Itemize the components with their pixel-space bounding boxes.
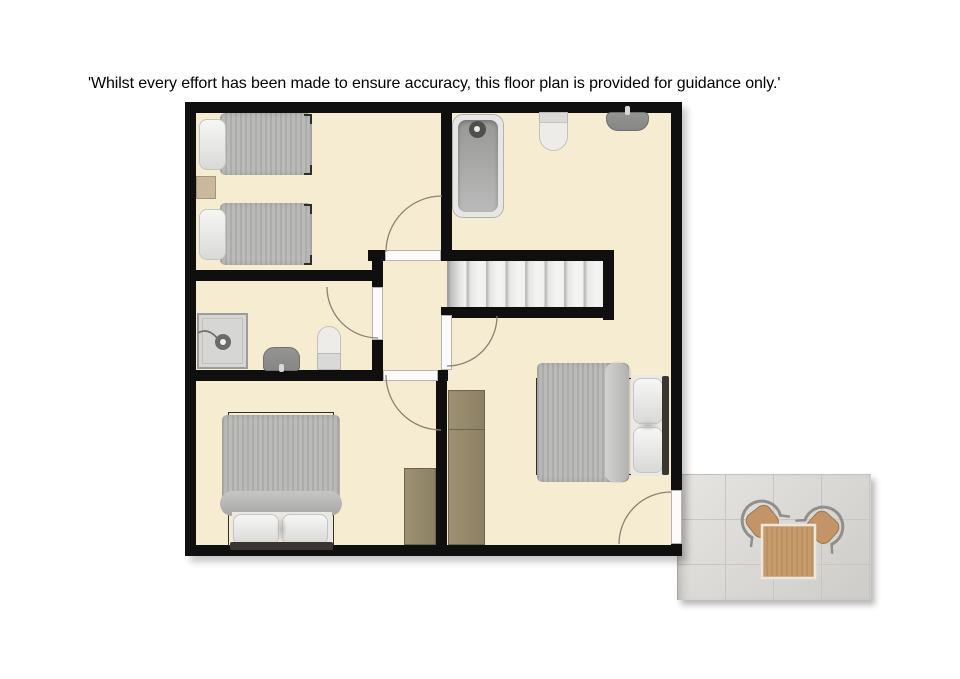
door-opening-bedroom-right [441, 315, 452, 370]
showerroom-basin-tap [279, 364, 284, 372]
floor-plan [185, 102, 682, 556]
shower-head [215, 334, 231, 350]
floorplan-page: 'Whilst every effort has been made to en… [0, 0, 960, 679]
double-bed-2-pillow [633, 378, 663, 424]
wall-showerroom-bottom [185, 370, 383, 381]
bathroom-toilet-bowl [539, 122, 568, 151]
double-bed-2-pillow [633, 427, 663, 473]
double-bed-1-headboard [230, 542, 333, 550]
single-bed-2-pillow [199, 209, 226, 260]
wall-stairs-bottom [441, 307, 614, 318]
wall-bathroom-bottom [438, 250, 614, 261]
single-bed-2-duvet [220, 203, 312, 265]
double-bed-1-pillow [233, 514, 279, 545]
single-bed-1-frame [304, 114, 312, 124]
pillow-crease [637, 420, 659, 431]
wardrobe-shelf-line [449, 429, 484, 430]
wall-bedroom-bathroom-divider [441, 113, 452, 261]
door-opening-shower-room [372, 287, 383, 340]
single-bed-2-frame [304, 255, 312, 265]
wall-outer-top [185, 102, 682, 113]
disclaimer-text: 'Whilst every effort has been made to en… [88, 75, 888, 93]
single-bed-2-frame [304, 204, 312, 214]
double-bed-2-headboard [662, 376, 669, 475]
door-opening-patio [671, 490, 682, 544]
single-bed-1-pillow [199, 119, 226, 170]
showerroom-toilet-bowl [317, 326, 341, 355]
wardrobe-right-bedroom [448, 390, 485, 545]
door-opening-bedroom-left [383, 370, 438, 381]
pillow-crease [276, 516, 287, 543]
patio-terrace [677, 474, 871, 600]
wall-outer-right [671, 102, 682, 556]
bathroom-basin-tap [625, 106, 630, 115]
staircase-shadow [447, 261, 465, 307]
wall-bedrooms-divider [436, 370, 447, 556]
bathtub-tap [469, 121, 486, 138]
door-opening-twin-bedroom [385, 250, 441, 261]
staircase [447, 261, 603, 307]
bedside-table [196, 176, 216, 199]
wall-landing-left-upper [372, 250, 383, 287]
wall-twin-bedroom-bottom [185, 270, 375, 281]
double-bed-1-pillow [282, 514, 328, 545]
wall-outer-left [185, 102, 196, 556]
double-bed-2-throw [605, 363, 629, 482]
showerroom-toilet-cistern [317, 353, 341, 370]
single-bed-1-duvet [220, 113, 312, 175]
single-bed-1-frame [304, 165, 312, 175]
wardrobe-left-bedroom [404, 468, 436, 545]
